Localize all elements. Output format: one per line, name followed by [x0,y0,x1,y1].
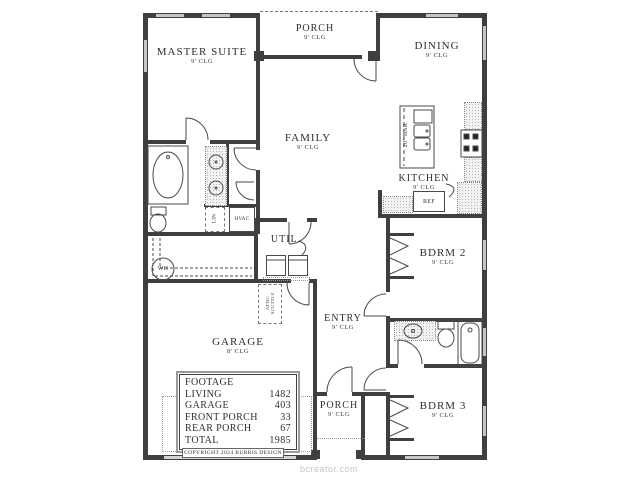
hall-bath-toilet [438,321,454,347]
wall-frontporch-top-b [352,392,386,396]
master-vanity [205,146,227,206]
room-label-rear-porch: PORCH 9' CLG [296,23,334,41]
room-label-util: UTIL. [271,234,301,245]
room-label-kitchen: KITCHEN 9' CLG [399,173,450,191]
wall-exterior-right [482,13,487,460]
watermark: bcreator.com [300,464,358,474]
wall-hall-right-b [386,316,390,368]
room-label-master-suite: MASTER SUITE 9' CLG [157,46,248,65]
wall-hall-right-a [386,218,390,292]
wall-master-right [256,13,260,144]
room-name: MASTER SUITE [157,46,248,58]
room-ceiling: 9' CLG [296,34,334,41]
row-value: 1482 [269,389,291,401]
window-bath2-right [483,328,486,356]
wall-closet2-stub-top [386,233,414,236]
door-bdrm2 [364,294,386,316]
wall-bath-hall-a [256,144,260,150]
room-name: BDRM 3 [420,400,467,412]
room-name: DINING [414,40,459,52]
window-master-top-2 [202,14,230,17]
footage-title-row: FOOTAGE [185,377,291,389]
room-ceiling: 9' CLG [399,184,450,191]
util-counter-strip [263,277,310,281]
window-dining-top [426,14,458,17]
room-ceiling: 9' CLG [324,324,362,331]
row-label: TOTAL [185,435,219,447]
dishwasher-label: DW [418,114,428,120]
hall-bath-vanity [394,321,436,341]
row-value: 67 [280,423,291,435]
room-ceiling: 8' CLG [212,348,264,355]
hvac-label: HVAC [235,217,250,222]
refrigerator-label: REF [423,199,435,205]
footage-table: FOOTAGE LIVING 1482 GARAGE 403 FRONT POR… [176,371,300,453]
wall-frontporch-right [361,396,365,455]
dryer-box [288,255,308,276]
window-bdrm2-right [483,240,486,270]
table-row: TOTAL 1985 [185,435,291,447]
kitchen-counter-right-lower [464,157,482,182]
wall-master-bottom-b [210,140,260,144]
porch-post [356,450,365,459]
hvac-closet: HVAC [229,207,255,232]
room-name: UTIL. [271,234,301,245]
wall-kitchen-bottom [378,214,487,218]
wall-master-bottom-a [143,140,186,144]
porch-post [368,51,380,61]
kitchen-counter-left [383,196,413,213]
bifold-closet-bdrm2 [388,237,408,275]
row-value: 33 [280,412,291,424]
water-heater-label: WH [158,266,169,272]
washer-box [266,255,286,276]
table-row: GARAGE 403 [185,400,291,412]
wall-hall-right-c [386,392,390,460]
door-garage [287,283,309,305]
door-rear-porch [354,59,376,81]
door-bath-hall [234,148,256,170]
table-row: REAR PORCH 67 [185,423,291,435]
wall-frontporch-top-a [317,392,327,396]
window-bdrm3-right [483,406,486,436]
wall-bath-bdrm3-b [424,364,482,368]
wall-util-top-b [307,218,317,222]
table-row: FRONT PORCH 33 [185,412,291,424]
bifold-closet-bdrm3 [388,399,408,437]
room-ceiling: 9' CLG [157,58,248,65]
door-hall-bath [398,340,422,364]
room-name: PORCH [320,400,358,411]
room-label-family: FAMILY 9' CLG [285,132,331,151]
room-ceiling: 9' CLG [414,52,459,59]
door-bdrm3 [364,368,386,390]
wall-porch-bottom [258,55,362,59]
room-label-front-porch: PORCH 9' CLG [320,400,358,418]
row-value: 403 [275,400,291,412]
door-master-bath [186,118,208,140]
refrigerator-box: REF [413,191,445,212]
room-label-dining: DINING 9' CLG [414,40,459,59]
floor-plan: REF DW HVAC LIN ATTIC SCUTTLE [0,0,640,480]
room-name: ENTRY [324,313,362,324]
window-bdrm3-bottom [405,456,439,459]
room-ceiling: 9' CLG [320,411,358,418]
front-porch-steps [317,438,365,439]
linen-label: LIN [213,207,218,231]
room-ceiling: 9' CLG [285,144,331,151]
room-label-garage: GARAGE 8' CLG [212,336,264,355]
kitchen-counter-right-upper [464,102,482,130]
table-row: LIVING 1482 [185,389,291,401]
row-label: REAR PORCH [185,423,252,435]
row-label: FRONT PORCH [185,412,258,424]
door-hvac-closet [236,182,254,200]
room-label-entry: ENTRY 9' CLG [324,313,362,331]
room-name: PORCH [296,23,334,34]
porch-post [311,450,320,459]
porch-post [254,51,264,61]
wall-util-top-a [254,218,287,222]
room-name: BDRM 2 [420,247,467,259]
room-ceiling: 9' CLG [420,259,467,266]
bar-label: 20" BAR [403,115,409,155]
window-dining-right [483,26,486,60]
porch-roof-dashed-line [260,11,378,12]
room-name: GARAGE [212,336,264,348]
master-bathtub [148,146,188,204]
copyright-label: COPYRIGHT 2024 BURRIS DESIGN [182,448,284,458]
row-label: GARAGE [185,400,229,412]
footage-table-inner: FOOTAGE LIVING 1482 GARAGE 403 FRONT POR… [179,374,297,450]
range-cooktop [461,130,482,157]
wall-closet2-stub-bottom [386,276,414,279]
room-name: FAMILY [285,132,331,144]
wall-bath-bdrm3-a [390,364,398,368]
room-ceiling: 9' CLG [420,412,467,419]
footage-title: FOOTAGE [185,377,234,389]
master-toilet [150,207,166,232]
window-master-top-1 [156,14,184,17]
wall-exterior-left [143,13,148,460]
wall-bath-bottom [143,232,258,236]
attic-scuttle-label: ATTIC SCUTTLE [265,285,275,321]
room-label-bdrm3: BDRM 3 9' CLG [420,400,467,419]
wall-closet3-stub-bottom [386,438,414,441]
row-label: LIVING [185,389,222,401]
room-name: KITCHEN [399,173,450,184]
window-master-left [144,40,147,72]
kitchen-counter-corner [457,182,482,214]
wall-kitchen-nook [378,190,382,218]
wall-garage-right [313,279,317,460]
row-value: 1985 [269,435,291,447]
dishwasher-box: DW [414,110,432,123]
room-label-bdrm2: BDRM 2 9' CLG [420,247,467,266]
hall-bathtub [458,320,482,366]
door-front-entry [327,367,352,392]
wall-closet3-stub-top [386,395,414,398]
